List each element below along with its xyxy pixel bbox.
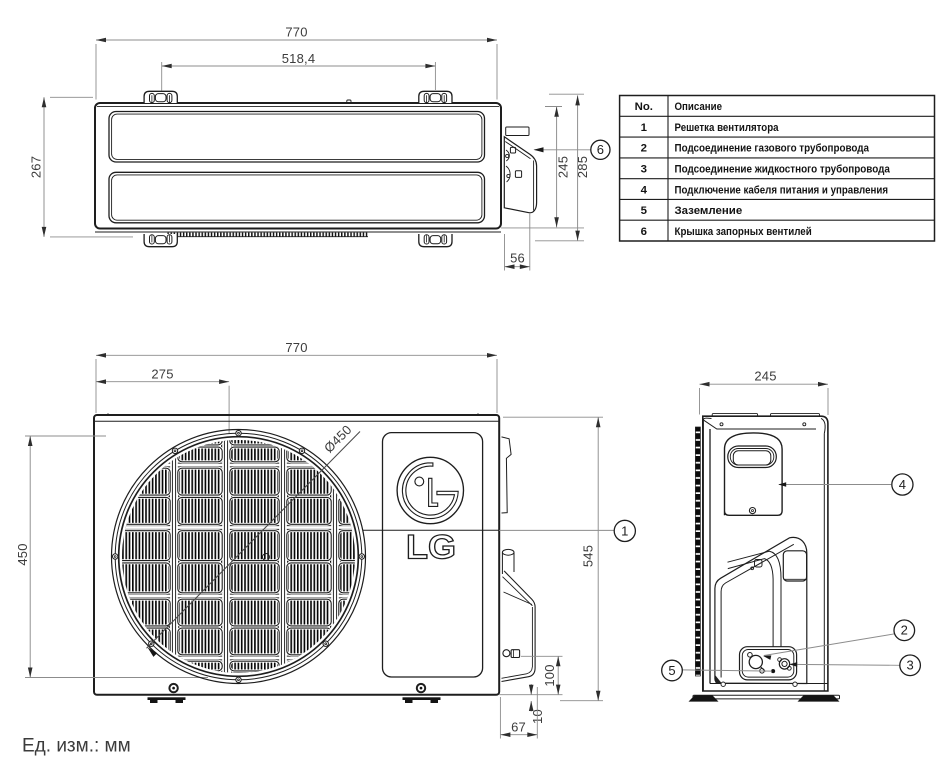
svg-text:Заземление: Заземление: [675, 205, 743, 217]
svg-text:245: 245: [556, 156, 571, 178]
svg-text:285: 285: [575, 156, 590, 178]
svg-text:6: 6: [597, 142, 604, 157]
svg-text:770: 770: [285, 25, 307, 40]
svg-text:No.: No.: [635, 101, 653, 113]
svg-text:2: 2: [901, 623, 908, 638]
svg-text:245: 245: [754, 368, 776, 383]
svg-text:1: 1: [641, 122, 648, 134]
svg-text:275: 275: [151, 366, 173, 381]
svg-text:Подключение кабеля питания и у: Подключение кабеля питания и управления: [675, 184, 889, 196]
svg-text:267: 267: [29, 156, 44, 178]
svg-text:Подсоединение газового трубопр: Подсоединение газового трубопровода: [675, 143, 870, 155]
svg-text:100: 100: [542, 664, 557, 686]
svg-text:Решетка вентилятора: Решетка вентилятора: [675, 122, 780, 134]
svg-text:3: 3: [906, 658, 913, 673]
svg-text:518,4: 518,4: [282, 51, 316, 66]
svg-text:Подсоединение жидкостного труб: Подсоединение жидкостного трубопровода: [675, 164, 891, 176]
svg-text:Крышка запорных вентилей: Крышка запорных вентилей: [675, 226, 812, 238]
svg-text:5: 5: [668, 663, 675, 678]
svg-text:Описание: Описание: [675, 101, 723, 113]
svg-text:3: 3: [641, 164, 647, 176]
svg-text:1: 1: [621, 523, 628, 538]
svg-text:67: 67: [511, 720, 526, 735]
svg-text:450: 450: [15, 543, 30, 565]
svg-text:4: 4: [641, 184, 648, 196]
svg-text:545: 545: [581, 545, 596, 567]
svg-text:770: 770: [285, 340, 307, 355]
svg-text:LG: LG: [406, 528, 456, 566]
svg-text:2: 2: [641, 143, 647, 155]
svg-text:Ед. изм.: мм: Ед. изм.: мм: [22, 736, 131, 757]
svg-text:6: 6: [641, 226, 647, 238]
svg-text:56: 56: [510, 251, 525, 266]
svg-text:5: 5: [641, 205, 648, 217]
svg-text:4: 4: [899, 477, 906, 492]
